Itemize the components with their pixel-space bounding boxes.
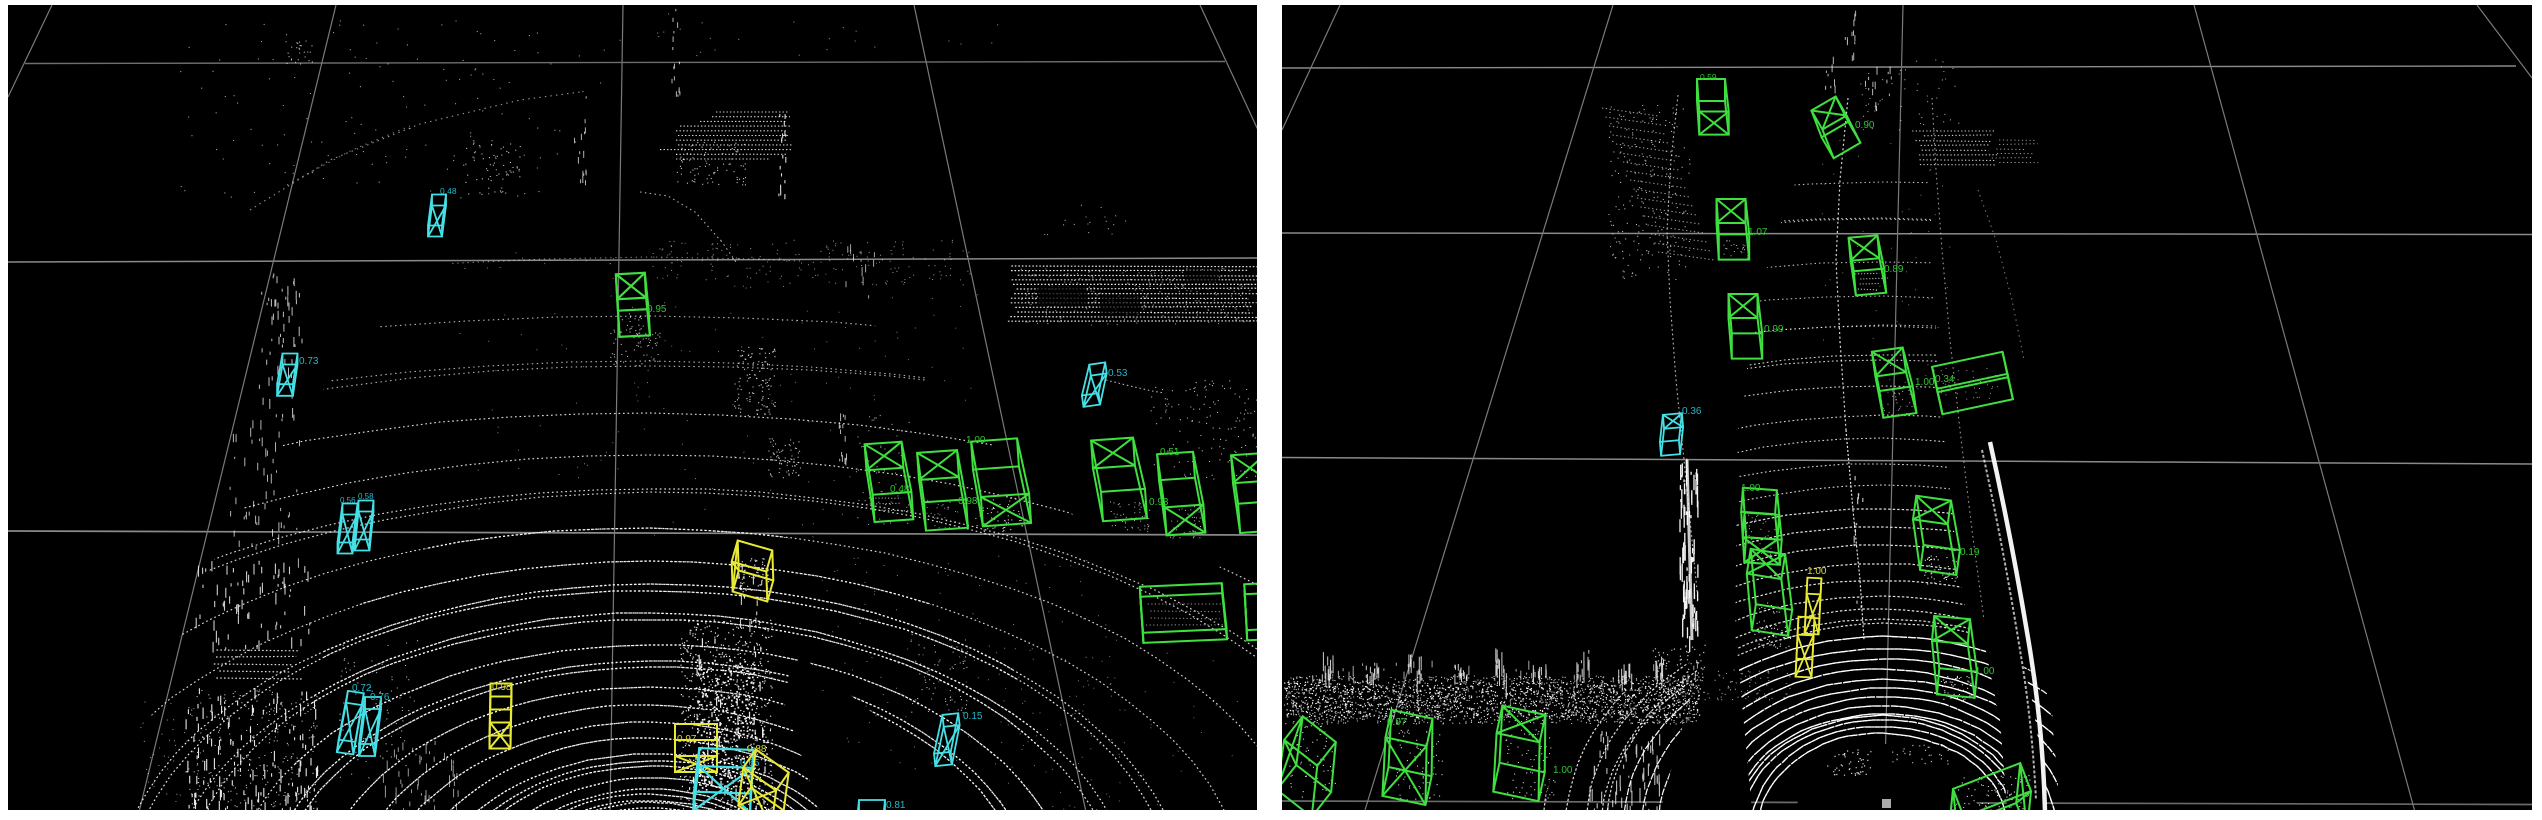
svg-text:0.73: 0.73 (299, 356, 319, 367)
svg-text:0.48: 0.48 (890, 484, 910, 495)
svg-text:1.00: 1.00 (1807, 566, 1827, 577)
svg-text:0.88: 0.88 (747, 744, 767, 755)
svg-text:0.15: 0.15 (963, 711, 983, 722)
svg-text:0.19: 0.19 (1960, 547, 1980, 558)
svg-text:0.99: 0.99 (1764, 324, 1784, 335)
svg-text:0.53: 0.53 (1108, 368, 1128, 379)
svg-text:1.00: 1.00 (1553, 765, 1573, 776)
svg-text:0.76: 0.76 (370, 692, 390, 703)
svg-text:0.98: 0.98 (958, 496, 978, 507)
svg-text:0.36: 0.36 (1682, 406, 1702, 417)
svg-text:0.56: 0.56 (340, 496, 356, 505)
svg-text:0.93: 0.93 (1149, 497, 1169, 508)
svg-text:0.95: 0.95 (647, 304, 667, 315)
svg-text:0.81: 0.81 (886, 800, 906, 811)
svg-text:0.48: 0.48 (440, 186, 457, 196)
svg-text:1.00: 1.00 (1741, 483, 1761, 494)
svg-text:1.07: 1.07 (1748, 227, 1768, 238)
svg-text:0.72: 0.72 (352, 683, 372, 694)
svg-text:0.34: 0.34 (1935, 374, 1955, 385)
svg-text:0.59: 0.59 (1700, 72, 1717, 82)
svg-text:0.97: 0.97 (677, 734, 697, 745)
svg-text:0.90: 0.90 (1855, 120, 1875, 131)
svg-text:0.58: 0.58 (358, 492, 374, 501)
svg-text:0.98: 0.98 (492, 682, 512, 693)
svg-text:1.00: 1.00 (1915, 377, 1935, 388)
svg-text:0.51: 0.51 (1160, 447, 1180, 458)
svg-text:0.97: 0.97 (1387, 717, 1407, 728)
svg-text:1.00: 1.00 (966, 435, 986, 446)
svg-text:0.89: 0.89 (1884, 264, 1904, 275)
svg-text:1.00: 1.00 (1975, 666, 1995, 677)
